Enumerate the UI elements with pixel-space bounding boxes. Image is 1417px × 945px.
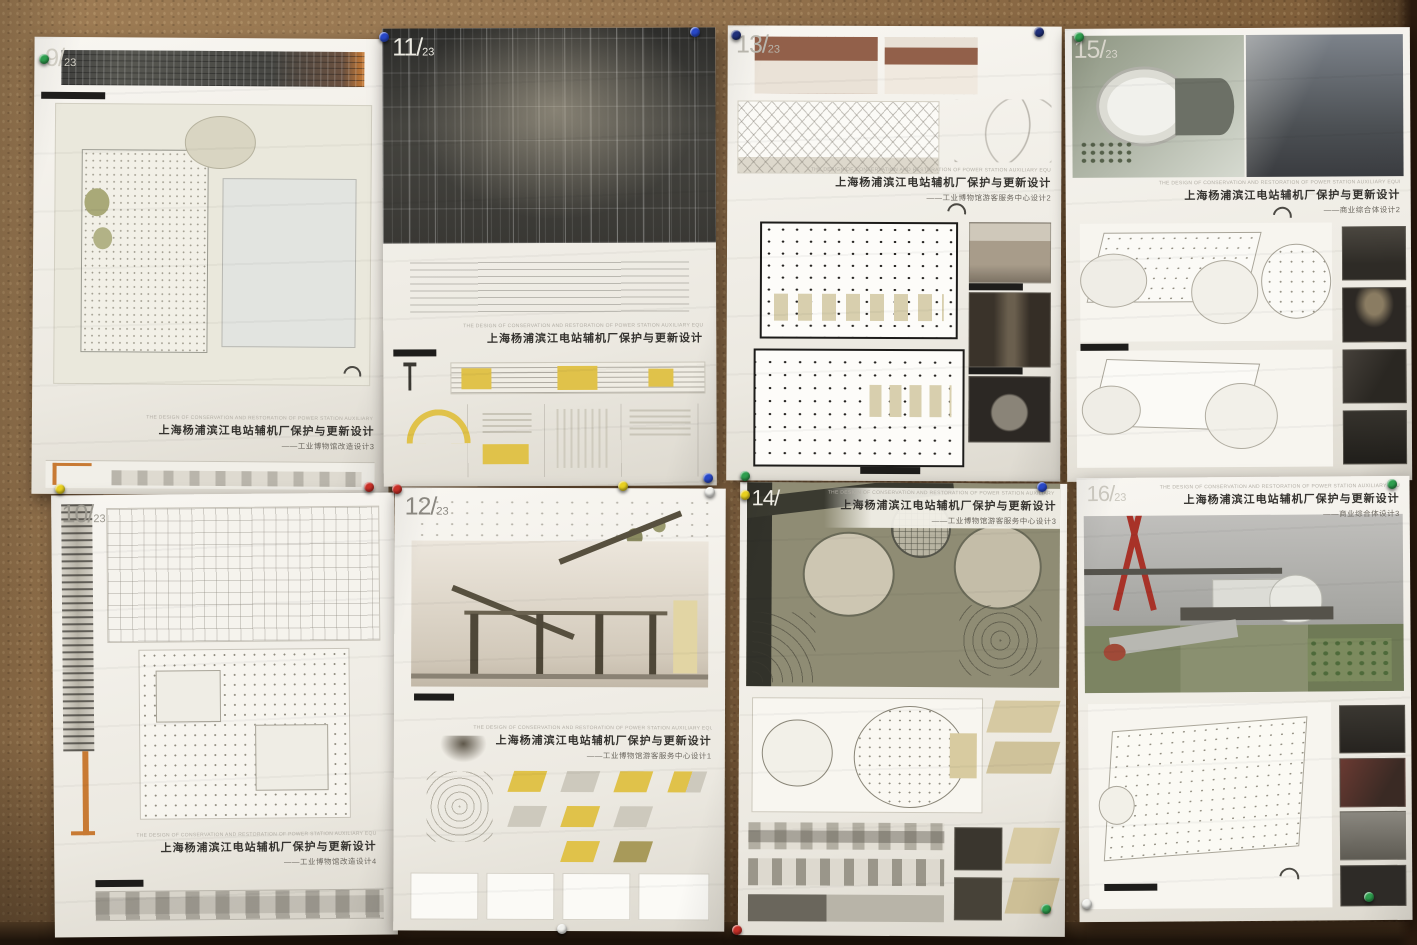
poster-15: 15/23 THE DESIGN OF CONSERVATION AND RES… — [1065, 27, 1412, 482]
render-thumbnail — [969, 222, 1051, 283]
bridge-deck — [1084, 568, 1282, 576]
render-thumbnail — [1340, 811, 1406, 860]
poster-title-cn: 上海杨浦滨江电站辅机厂保护与更新设计 — [828, 496, 1057, 513]
poster-title-block: THE DESIGN OF CONSERVATION AND RESTORATI… — [463, 323, 703, 349]
floor-plan-drawing — [752, 697, 983, 813]
poster-number-total: 23 — [1114, 492, 1126, 504]
crane-mast — [52, 463, 56, 485]
axon-block — [507, 806, 547, 828]
poster-number: 13/23 — [736, 32, 780, 57]
poster-title-cn: 上海杨浦滨江电站辅机厂保护与更新设计 — [1159, 186, 1401, 203]
detail-box — [638, 874, 710, 921]
aerial-bridge-render — [1083, 514, 1404, 694]
axon-diagram-grid — [506, 767, 712, 865]
timber-pavilion-render — [411, 541, 709, 688]
floor-plan-2 — [1077, 349, 1333, 468]
render-thumbnail — [1343, 410, 1407, 464]
render-thumbnail — [1342, 349, 1406, 403]
yellow-axon-block — [560, 806, 600, 828]
poster-title-block: THE DESIGN OF CONSERVATION AND RESTORATI… — [473, 725, 711, 762]
floor-plan-upper — [106, 506, 380, 643]
plan-circle — [1098, 786, 1134, 825]
poster-title-en: THE DESIGN OF CONSERVATION AND RESTORATI… — [473, 725, 711, 732]
section-strip — [748, 894, 944, 922]
plan-circle — [1261, 243, 1331, 318]
axon-block — [613, 841, 653, 863]
podium-bar — [1180, 606, 1334, 619]
tan-axon-block — [1005, 878, 1060, 914]
section-building-mass — [111, 471, 361, 488]
poster-subtitle: ——工业博物馆改造设计4 — [137, 856, 377, 869]
render-thumbnail — [1342, 288, 1406, 342]
render-thumbnail — [1342, 226, 1406, 280]
interior-render — [1246, 34, 1404, 178]
poster-title-block: THE DESIGN OF CONSERVATION AND RESTORATI… — [136, 831, 376, 869]
poster-subtitle — [463, 348, 703, 349]
poster-number: 10/23 — [61, 502, 105, 527]
column — [536, 614, 544, 675]
floor-plan-2 — [753, 349, 964, 467]
poster-number-total: 23 — [768, 43, 780, 55]
axon-block — [613, 806, 653, 828]
detail-drawing — [630, 409, 691, 436]
poster-number-value: 16/ — [1086, 481, 1114, 506]
side-elevation-drawing — [885, 37, 979, 94]
poster-title-en: THE DESIGN OF CONSERVATION AND RESTORATI… — [828, 489, 1057, 496]
concentric-diagram — [427, 771, 493, 842]
poster-title-cn: 上海杨浦滨江电站辅机厂保护与更新设计 — [1160, 490, 1400, 508]
plan-angular-outline — [1104, 716, 1308, 861]
poster-11: 11/23 THE DESIGN OF CONSERVATION AND RES… — [382, 27, 717, 486]
arc-lines — [752, 613, 815, 683]
poster-title-en: THE DESIGN OF CONSERVATION AND RESTORATI… — [463, 323, 703, 330]
poster-title-block: THE DESIGN OF CONSERVATION AND RESTORATI… — [1159, 179, 1401, 216]
poster-number-value: 14/ — [751, 485, 779, 510]
trees — [1308, 638, 1391, 681]
beige-wedge — [950, 733, 978, 778]
poster-subtitle: ——工业博物馆游客服务中心设计1 — [473, 750, 711, 762]
plan-green-circle — [84, 188, 109, 216]
yellow-arch-diagram — [406, 410, 470, 444]
spiral-lines — [959, 606, 1041, 676]
poster-title-en: THE DESIGN OF CONSERVATION AND RESTORATI… — [811, 167, 1051, 174]
render-thumbnail — [1339, 705, 1405, 754]
vertical-section-strip — [61, 504, 94, 752]
poster-title-block: THE DESIGN OF CONSERVATION AND RESTORATI… — [146, 415, 375, 453]
poster-9: 9/23 THE DESIGN OF CONSERVATION AND REST… — [31, 37, 391, 496]
detail-box — [562, 873, 630, 920]
drawing-label-chip — [414, 693, 454, 700]
poster-10: 10/23 THE DESIGN OF CONSERVATION AND RES… — [51, 493, 398, 938]
site-plan-drawing — [54, 103, 372, 386]
small-plan-rows — [410, 257, 690, 313]
poster-number: 15/23 — [1073, 38, 1117, 63]
circular-building — [953, 524, 1042, 610]
poster-subtitle: ——商业综合体设计2 — [1159, 204, 1401, 216]
poster-title-block: THE DESIGN OF CONSERVATION AND RESTORATI… — [1160, 483, 1400, 521]
poster-number-total: 23 — [93, 513, 105, 525]
poster-number-total: 23 — [64, 57, 76, 69]
yellow-axon-block — [507, 771, 547, 793]
poster-14: 14/ THE DESIGN OF CONSERVATION AND RESTO… — [738, 482, 1067, 937]
poster-subtitle: ——工业博物馆改造设计3 — [146, 440, 375, 453]
plan-circle — [1082, 385, 1140, 434]
long-section-strip — [96, 888, 384, 921]
column-sketch — [403, 363, 416, 391]
poster-13: 13/23 THE DESIGN OF CONSERVATION AND RES… — [726, 25, 1062, 481]
poster-title-block: THE DESIGN OF CONSERVATION AND RESTORATI… — [811, 167, 1052, 204]
render-thumbnail — [1341, 864, 1407, 906]
section-strip — [748, 822, 944, 850]
poster-subtitle: ——商业综合体设计3 — [1160, 508, 1400, 521]
poster-number-value: 9/ — [45, 44, 64, 72]
plan-annex-outline — [221, 178, 356, 348]
poster-number-total: 23 — [422, 46, 434, 58]
plan-building-outline — [80, 149, 209, 353]
render-thumbnail — [969, 292, 1051, 367]
column — [649, 615, 657, 676]
poster-subtitle: ——工业博物馆游客服务中心设计3 — [828, 514, 1057, 526]
curved-canopy — [1175, 78, 1234, 135]
poster-number-value: 11/ — [392, 33, 422, 61]
poster-16: 16/23 THE DESIGN OF CONSERVATION AND RES… — [1076, 476, 1412, 922]
crane-jib — [52, 463, 91, 465]
poster-number: 14/ — [751, 487, 779, 509]
truss-tie-beam — [464, 611, 667, 615]
plan-circle-plaza — [185, 116, 256, 169]
render-caption-chip — [969, 283, 1022, 290]
render-thumbnail — [954, 828, 1002, 871]
floor-plan-1 — [1080, 222, 1332, 341]
highlight-patch — [648, 369, 673, 387]
circular-building — [803, 531, 895, 617]
poster-number-value: 12/ — [405, 492, 437, 520]
detail-drawing — [556, 409, 611, 468]
yellow-axon-block — [614, 771, 654, 793]
column — [470, 614, 478, 675]
drawing-label-chip — [860, 467, 920, 474]
render-thumbnail — [1340, 758, 1406, 807]
poster-title-cn: 上海杨浦滨江电站辅机厂保护与更新设计 — [136, 838, 376, 856]
plan-beige-rooms — [869, 385, 952, 417]
drawing-label-chip — [41, 92, 105, 99]
tan-axon-block — [986, 701, 1061, 733]
detail-box — [486, 873, 554, 920]
elevation-highlight-drawing — [450, 362, 705, 395]
poster-number: 12/23 — [405, 494, 449, 519]
detail-drawing — [483, 411, 532, 433]
yellow-panel — [673, 600, 697, 673]
highlight-patch — [483, 444, 529, 465]
drawing-label-chip — [1104, 884, 1158, 891]
poster-number-value: 10/ — [61, 500, 93, 528]
orange-detail-line — [82, 752, 88, 836]
tan-axon-block — [986, 742, 1061, 774]
plan-room — [156, 670, 221, 723]
floor-plan-1 — [760, 221, 958, 339]
poster-title-cn: 上海杨浦滨江电站辅机厂保护与更新设计 — [811, 174, 1052, 191]
highlight-patch — [461, 368, 491, 389]
poster-subtitle: ——工业博物馆游客服务中心设计2 — [811, 192, 1052, 204]
floor-plan-lower — [138, 648, 351, 820]
poster-title-block: THE DESIGN OF CONSERVATION AND RESTORATI… — [824, 487, 1061, 528]
poster-title-cn: 上海杨浦滨江电站辅机厂保护与更新设计 — [463, 330, 703, 347]
drawing-label-chip — [96, 879, 144, 886]
render-thumbnail — [954, 877, 1002, 920]
poster-number: 11/23 — [392, 35, 434, 60]
truss-section-drawing — [737, 101, 940, 174]
concept-sketches — [954, 99, 1051, 163]
poster-number-total: 23 — [1105, 49, 1117, 61]
long-elevation-drawing — [61, 50, 365, 88]
drawing-label-chip — [393, 349, 436, 356]
render-thumbnail — [968, 377, 1050, 443]
drawing-label-chip — [1080, 343, 1128, 350]
poster-number-total: 23 — [436, 505, 448, 517]
poster-title-en: THE DESIGN OF CONSERVATION AND RESTORATI… — [1159, 179, 1401, 186]
yellow-axon-block — [667, 771, 707, 793]
orange-detail-line — [71, 831, 95, 836]
poster-number-value: 13/ — [736, 30, 768, 58]
poster-12: 12/23 THE DESIGN OF CONSERVATION AND RES… — [393, 487, 726, 931]
bottom-section-strip — [46, 460, 375, 491]
trees — [1079, 141, 1131, 164]
highlight-patch — [557, 366, 598, 390]
render-caption-chip — [969, 368, 1022, 375]
poster-title-cn: 上海杨浦滨江电站辅机厂保护与更新设计 — [146, 422, 375, 440]
plan-circle — [762, 719, 833, 787]
plan-circle — [1191, 260, 1259, 324]
section-strip — [748, 858, 944, 886]
poster-title-cn: 上海杨浦滨江电站辅机厂保护与更新设计 — [473, 732, 711, 749]
ground-line — [411, 674, 709, 679]
poster-number: 16/23 — [1086, 483, 1126, 505]
column — [595, 614, 603, 675]
axon-block — [560, 771, 600, 793]
poster-number-value: 15/ — [1073, 36, 1105, 64]
detail-box — [410, 873, 478, 920]
detail-columns — [397, 403, 704, 477]
tan-axon-block — [1005, 828, 1060, 864]
yellow-axon-block — [560, 841, 600, 863]
plan-circle — [1205, 382, 1279, 449]
poster-number: 9/23 — [45, 46, 76, 71]
plan-room — [255, 724, 329, 790]
plan-beige-rooms — [774, 294, 945, 322]
plan-green-circle — [93, 227, 112, 249]
